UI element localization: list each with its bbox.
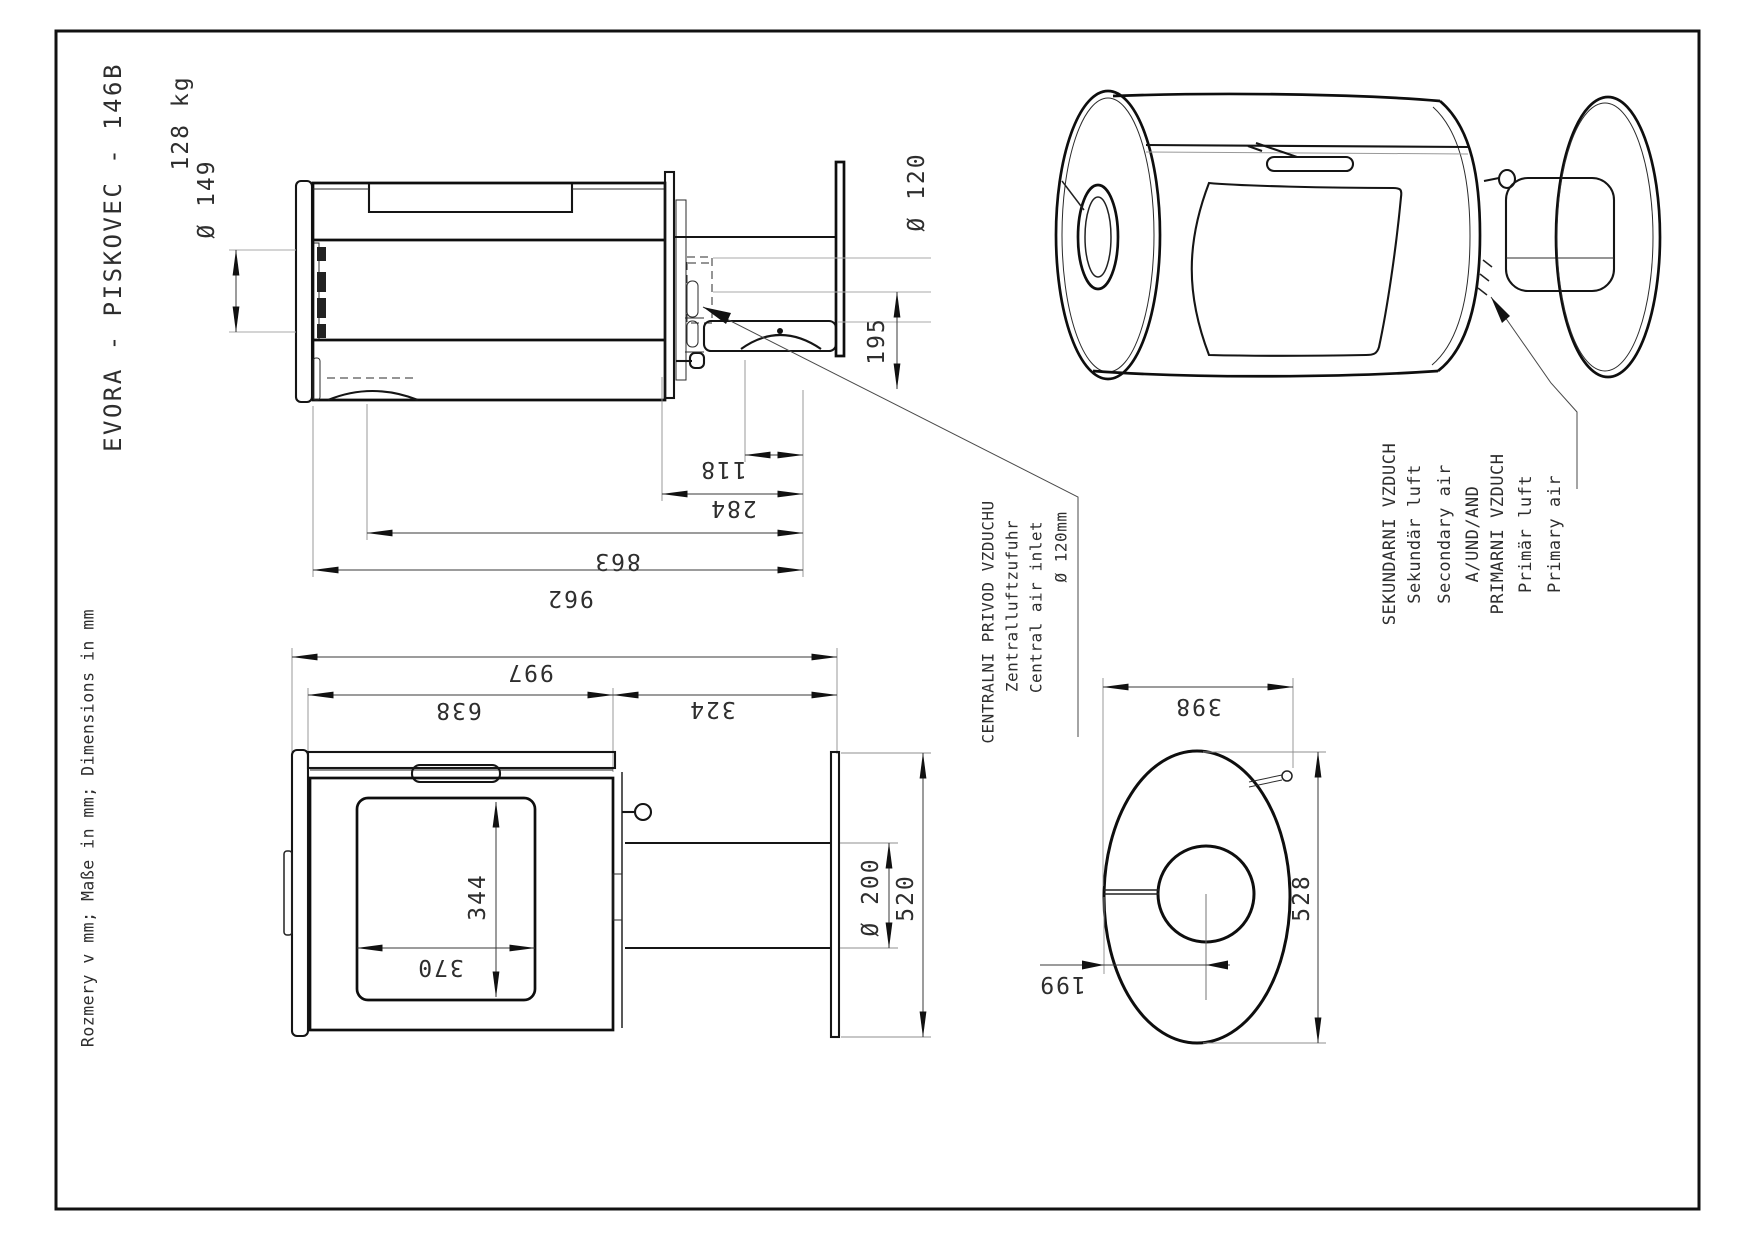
dim-plate-height-text: 520 — [893, 874, 919, 922]
dim-duct-depth-text: 284 — [709, 495, 757, 521]
dims-side-view: Ø 149 Ø 120 195 118 284 863 962 — [194, 152, 931, 611]
air-supply-line: SEKUNDARNI VZDUCH — [1380, 443, 1400, 626]
dim-inlet-to-wall-text: 118 — [699, 456, 747, 482]
rear-vent-slot — [687, 281, 698, 317]
view-3d — [1056, 91, 1660, 379]
body-bottom-3d — [1093, 371, 1438, 376]
dim-hole-offset-text: 199 — [1038, 971, 1086, 997]
wall-plate-edge — [836, 162, 844, 356]
dim-plate-width-text: 398 — [1174, 693, 1222, 719]
technical-drawing: EVORA - PISKOVEC - 146B 128 kg Rozmery v… — [0, 0, 1754, 1240]
door-glass-3d — [1192, 183, 1402, 356]
air-knob-side — [690, 353, 704, 368]
wall-plate-outline — [1104, 751, 1290, 1043]
dim-total-width-text: 997 — [506, 659, 554, 685]
air-supply-line: Secondary air — [1435, 464, 1455, 604]
weight-label: 128 kg — [168, 75, 194, 170]
air-supply-line: Primary air — [1545, 475, 1565, 593]
hinge-bar — [284, 851, 292, 935]
sheet-border — [56, 31, 1699, 1209]
dim-body-width-text: 638 — [434, 697, 482, 723]
central-air-line: Zentralluftzufuhr — [1003, 520, 1022, 692]
dim-plate-diameter-text: 528 — [1289, 874, 1315, 922]
air-supply-line: Sekundär luft — [1405, 464, 1425, 604]
air-supply-line: Primär luft — [1516, 475, 1536, 593]
rear-vent-slot — [687, 321, 698, 347]
central-air-line: Ø 120mm — [1052, 512, 1071, 583]
dim-duct-width-text: 324 — [688, 696, 736, 722]
handle — [1267, 157, 1353, 171]
top-recess — [369, 184, 572, 212]
air-knob-front — [635, 804, 651, 820]
dim-glass-height-text: 344 — [465, 873, 491, 921]
view-front: 997 638 324 344 370 Ø 200 520 — [284, 648, 931, 1037]
hinge-details — [317, 247, 326, 338]
dim-inlet-diameter-text: Ø 120 — [904, 152, 930, 231]
dim-total-depth-text: 962 — [546, 585, 594, 611]
dim-inlet-height-text: 195 — [864, 317, 890, 365]
dim-glass-width-text: 370 — [416, 954, 464, 980]
central-air-line: Central air inlet — [1027, 521, 1046, 693]
rear-duct-3d — [1506, 178, 1614, 291]
leader-central-air — [703, 307, 1078, 737]
end-face — [1056, 91, 1160, 379]
body-outline — [313, 183, 665, 400]
body-top-3d — [1113, 94, 1440, 101]
cover-seam — [1062, 181, 1084, 210]
leader-arrowhead — [1491, 297, 1510, 323]
units-note: Rozmery v mm; Maße in mm; Dimensions in … — [79, 609, 98, 1047]
body-right-3d — [1438, 101, 1480, 371]
dim-flue-diameter-text: Ø 149 — [194, 159, 220, 238]
damper-pin — [1282, 771, 1292, 781]
wall-disc-3d — [1556, 97, 1660, 377]
central-air-line: CENTRALNI PRIVOD VZDUCHU — [979, 500, 998, 743]
drawing-sheet: EVORA - PISKOVEC - 146B 128 kg Rozmery v… — [0, 0, 1754, 1240]
air-supply-line: A/UND/AND — [1463, 486, 1483, 583]
body-front — [310, 778, 613, 1030]
flue-ring — [1078, 185, 1118, 289]
hidden-air-inlet — [687, 257, 712, 323]
callout-air-supply: SEKUNDARNI VZDUCH Sekundär luft Secondar… — [1380, 443, 1565, 626]
wall-plate-front — [831, 752, 839, 1037]
front-plate — [296, 181, 312, 402]
front-plate-front — [292, 750, 308, 1036]
top-seam-3d — [1146, 145, 1468, 147]
air-supply-line: PRIMARNI VZDUCH — [1488, 453, 1508, 614]
view-wall-plate: 398 528 199 — [1038, 678, 1326, 1043]
view-side — [296, 162, 844, 402]
callout-central-air: CENTRALNI PRIVOD VZDUCHU Zentralluftzufu… — [979, 500, 1071, 743]
model-title: EVORA - PISKOVEC - 146B — [99, 62, 127, 452]
dim-duct-diameter-text: Ø 200 — [858, 857, 884, 936]
